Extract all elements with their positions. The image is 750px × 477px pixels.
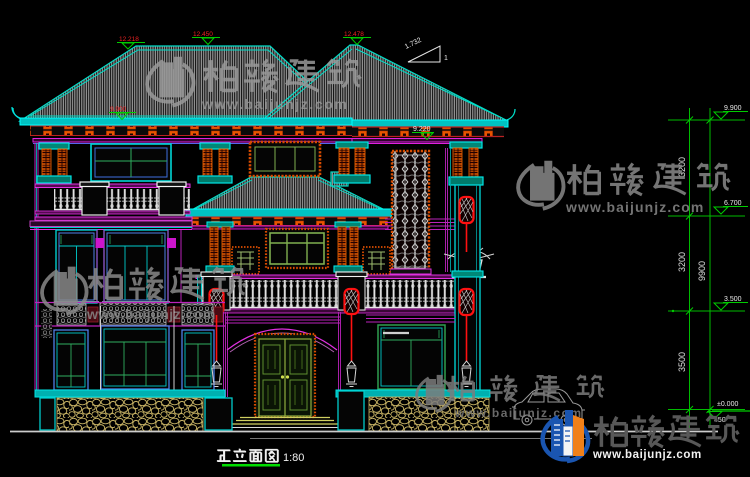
svg-text:±0.000: ±0.000 xyxy=(717,401,738,408)
svg-text:12.450: 12.450 xyxy=(193,31,213,38)
svg-text:1:80: 1:80 xyxy=(283,452,304,464)
svg-text:9.900: 9.900 xyxy=(110,106,127,113)
svg-text:9.900: 9.900 xyxy=(724,105,742,112)
svg-text:12.218: 12.218 xyxy=(119,36,139,43)
svg-text:12.478: 12.478 xyxy=(344,31,364,38)
svg-text:www.baijunjz.com: www.baijunjz.com xyxy=(86,306,216,322)
svg-text:www.baijunjz.com: www.baijunjz.com xyxy=(565,199,704,215)
svg-text:3.500: 3.500 xyxy=(724,296,742,303)
svg-text:3500: 3500 xyxy=(677,352,687,372)
svg-text:6.700: 6.700 xyxy=(724,200,742,207)
svg-text:9.220: 9.220 xyxy=(413,126,431,133)
svg-text:www.baijunjz.com: www.baijunjz.com xyxy=(592,449,702,461)
svg-text:www.baijunjz.com: www.baijunjz.com xyxy=(454,406,583,420)
svg-text:3200: 3200 xyxy=(677,252,687,272)
svg-text:1: 1 xyxy=(444,55,448,62)
svg-text:www.baijunjz.com: www.baijunjz.com xyxy=(201,96,348,112)
svg-text:9900: 9900 xyxy=(697,261,707,281)
